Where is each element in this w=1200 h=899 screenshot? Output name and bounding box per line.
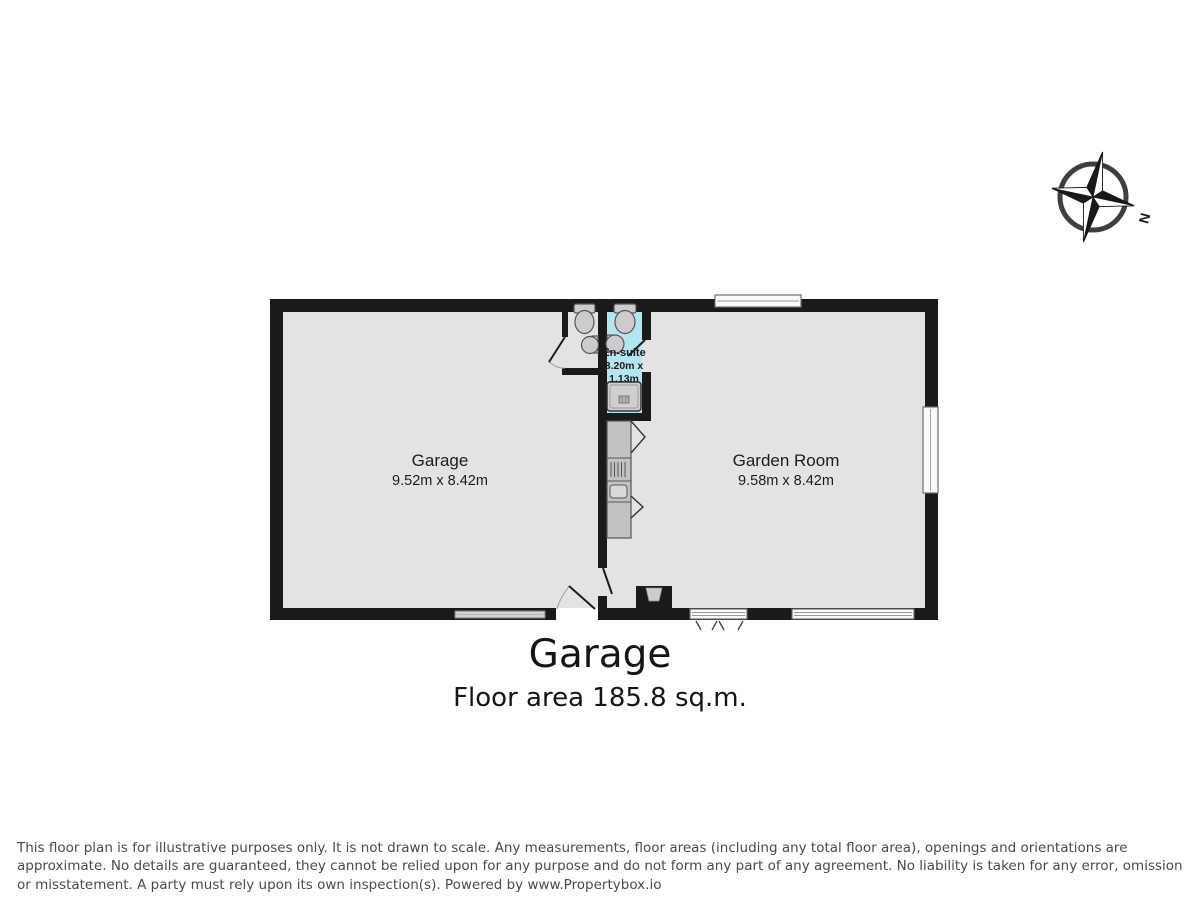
room-dims-garage: 9.52m x 8.42m	[392, 473, 488, 489]
vent-tick	[696, 621, 701, 630]
ensuite-wall-bottom	[598, 413, 651, 421]
room-dims-ensuite-1: 3.20m x	[605, 360, 644, 372]
drain-icon	[619, 396, 629, 403]
kitchen-counter	[607, 421, 631, 538]
compass-icon: N	[1042, 143, 1154, 250]
flue-icon	[646, 588, 662, 601]
kitchen-sink-icon	[610, 485, 627, 498]
vent-tick	[719, 621, 724, 630]
floor-plan: Garage 9.52m x 8.42m Garden Room 9.58m x…	[0, 0, 1200, 899]
wc-wall-bottom	[562, 368, 607, 375]
plan-title: Garage	[0, 632, 1200, 677]
floorplan-page: { "plan": { "rooms": { "garage": {"name"…	[0, 0, 1200, 899]
wc-wall-left	[562, 312, 568, 337]
chimney-breast	[636, 586, 672, 610]
window-bottom-small	[690, 609, 747, 619]
sink-icon	[582, 336, 599, 354]
shower-tray	[607, 382, 641, 411]
window-bottom-large	[792, 609, 914, 619]
toilet-icon	[574, 304, 595, 334]
window-vent-ticks	[696, 621, 743, 630]
room-label-garden-room: Garden Room	[733, 451, 840, 470]
room-dims-ensuite-2: 1.13m	[609, 373, 639, 385]
room-label-garage: Garage	[412, 451, 469, 470]
room-dims-garden-room: 9.58m x 8.42m	[738, 473, 834, 489]
vent-tick	[738, 621, 743, 630]
vent-tick	[712, 621, 717, 630]
ensuite-wall-right-upper	[642, 312, 651, 340]
room-label-ensuite: En-suite	[602, 347, 645, 359]
toilet-icon	[614, 304, 636, 334]
compass-north-label: N	[1136, 211, 1154, 225]
disclaimer-text: This floor plan is for illustrative purp…	[17, 839, 1189, 894]
garage-door-gap	[556, 608, 598, 620]
divider-wall-stub	[598, 596, 607, 610]
floor-area-text: Floor area 185.8 sq.m.	[0, 683, 1200, 713]
